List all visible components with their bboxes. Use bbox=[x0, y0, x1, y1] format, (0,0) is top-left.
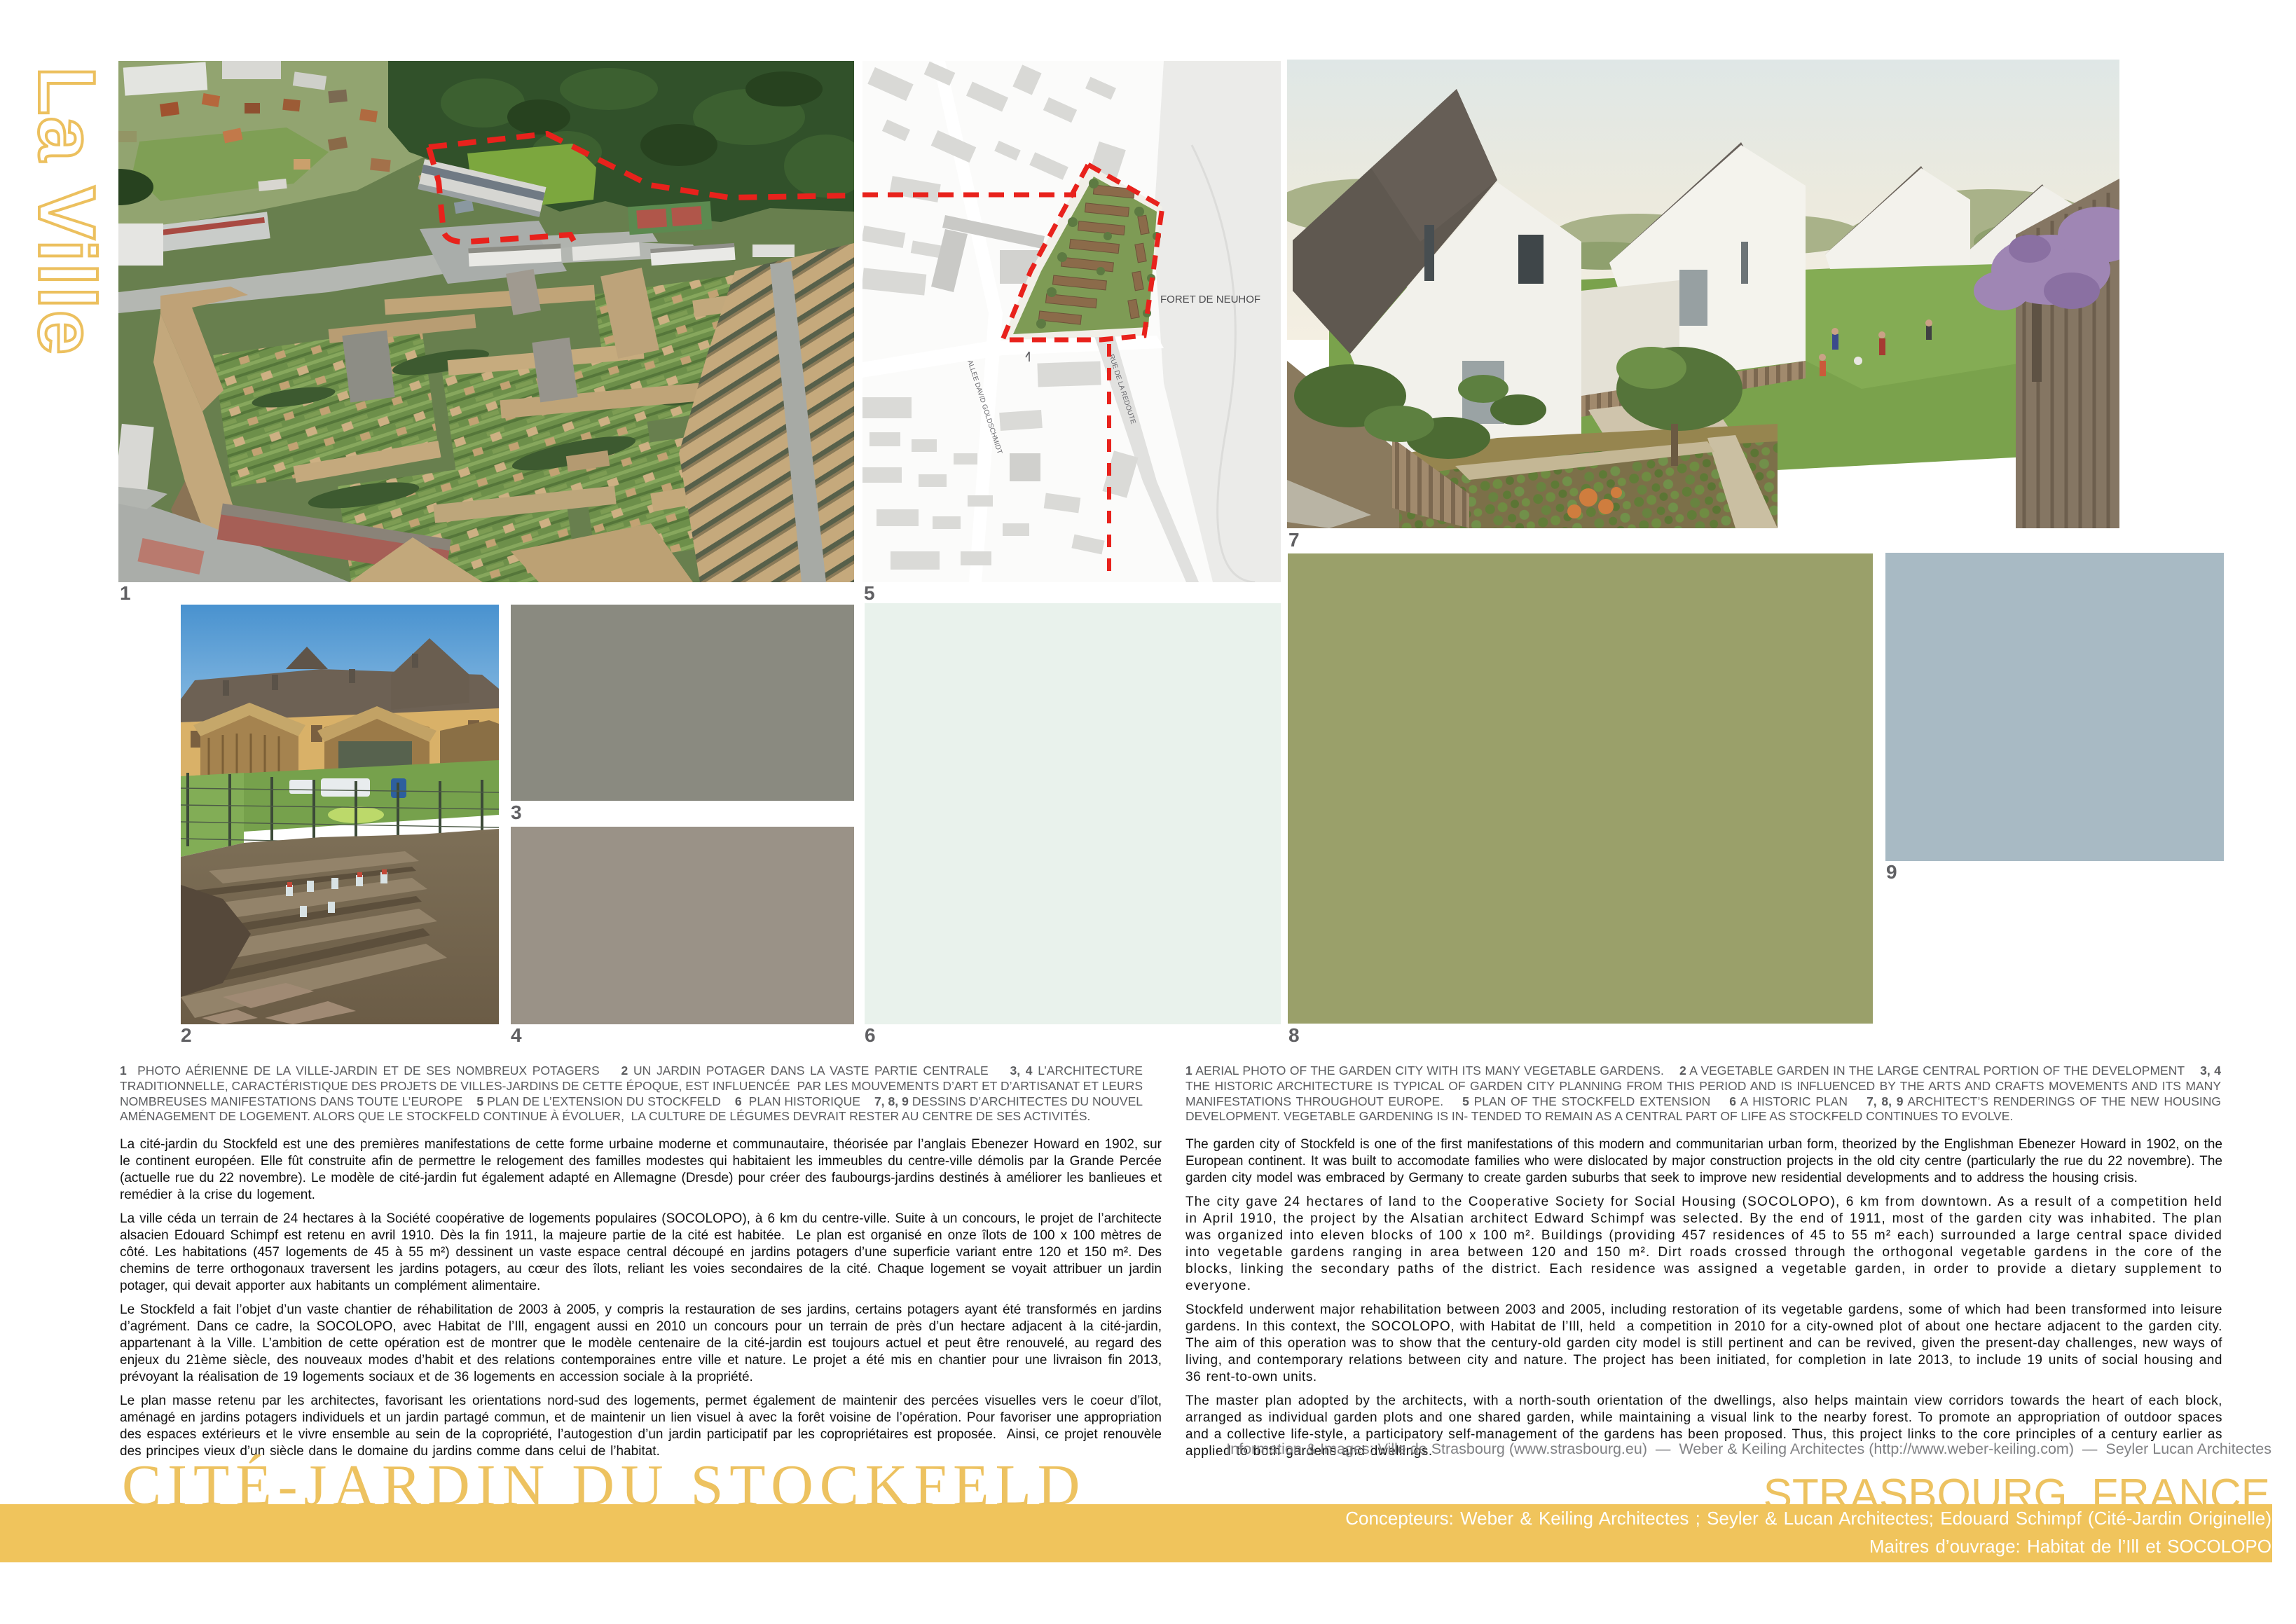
svg-text:FORET DE NEUHOF: FORET DE NEUHOF bbox=[1160, 294, 1260, 305]
